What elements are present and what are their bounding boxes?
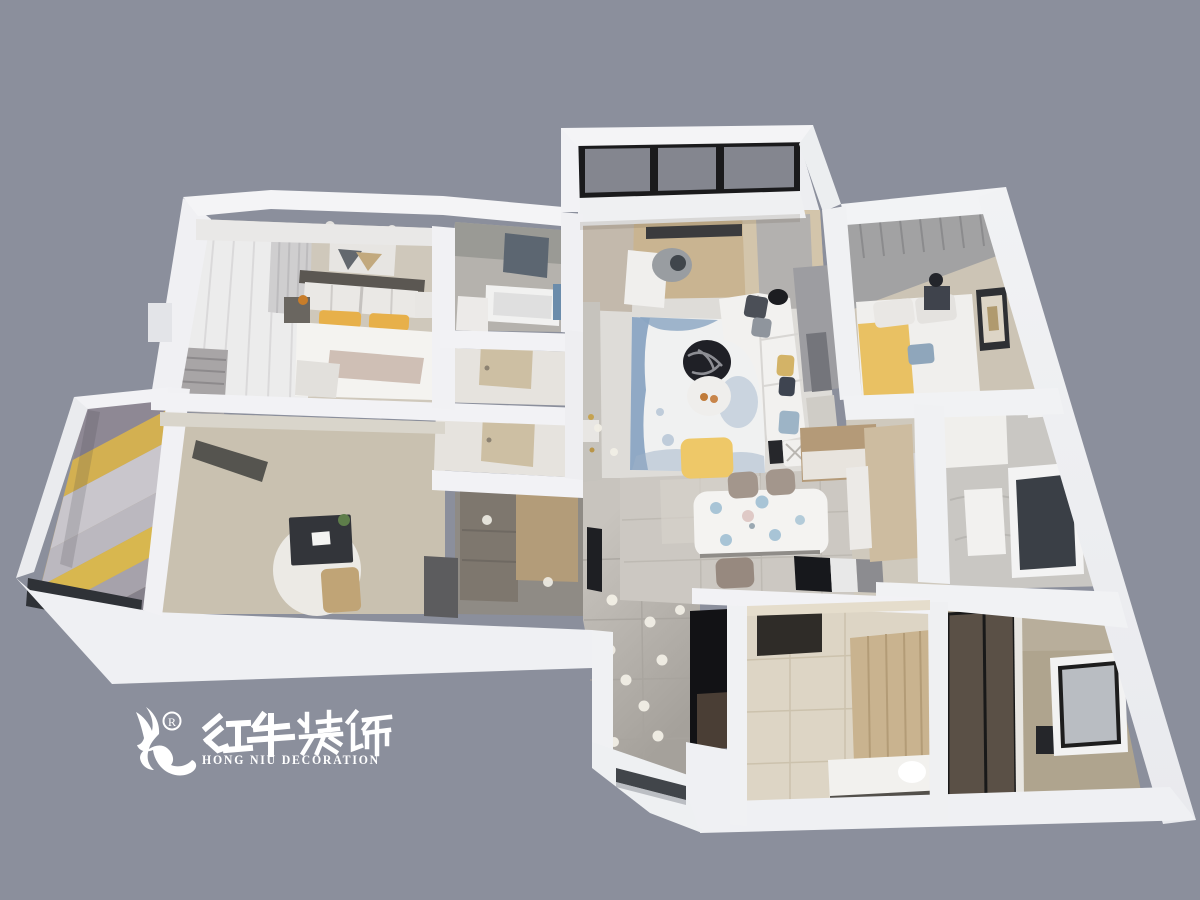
svg-text:R: R bbox=[168, 715, 176, 729]
svg-text:HONG NIU DECORATION: HONG NIU DECORATION bbox=[202, 752, 380, 767]
